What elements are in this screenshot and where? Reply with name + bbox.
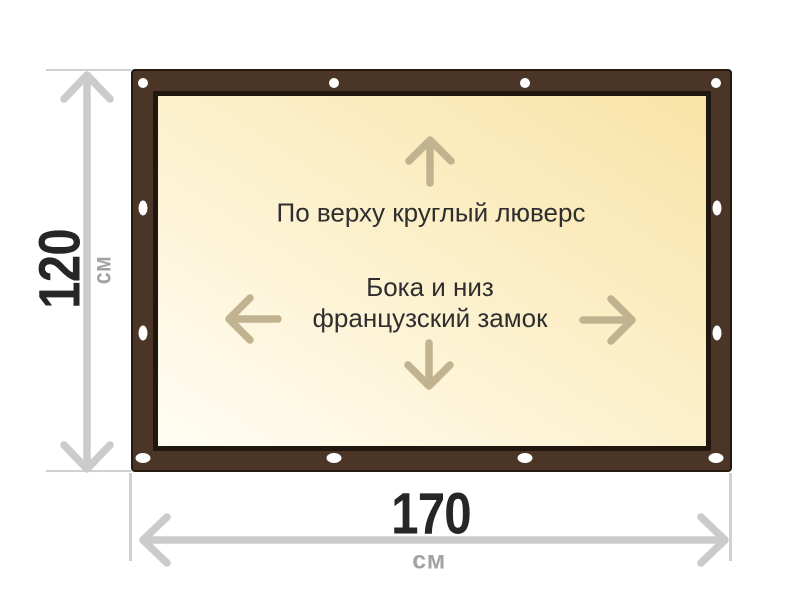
grommet xyxy=(136,453,151,463)
grommet xyxy=(518,453,533,463)
height-unit: см xyxy=(89,256,118,284)
annotation-middle-line1: Бока и низ xyxy=(313,272,548,303)
width-extension-left xyxy=(129,473,132,561)
annotation-middle-line2: французский замок xyxy=(313,303,548,334)
grommet xyxy=(520,78,530,88)
grommet xyxy=(711,78,721,88)
arrow-up-icon xyxy=(405,133,455,187)
grommet xyxy=(713,326,722,341)
arrow-down-icon xyxy=(404,339,454,393)
grommet xyxy=(329,78,339,88)
tarp-dimension-diagram: По верху круглый люверс Бока и низ франц… xyxy=(0,0,800,600)
tarp-frame xyxy=(131,69,732,472)
grommet xyxy=(709,453,724,463)
height-value: 120 xyxy=(27,229,94,309)
grommet xyxy=(138,78,148,88)
width-unit: см xyxy=(412,547,445,576)
grommet xyxy=(139,201,148,216)
width-value: 170 xyxy=(391,481,471,548)
annotation-middle: Бока и низ французский замок xyxy=(313,272,548,334)
arrow-left-icon xyxy=(222,294,284,344)
arrow-right-icon xyxy=(577,295,639,345)
grommet xyxy=(327,453,342,463)
annotation-top: По верху круглый люверс xyxy=(277,198,586,229)
grommet xyxy=(713,201,722,216)
grommet xyxy=(139,326,148,341)
